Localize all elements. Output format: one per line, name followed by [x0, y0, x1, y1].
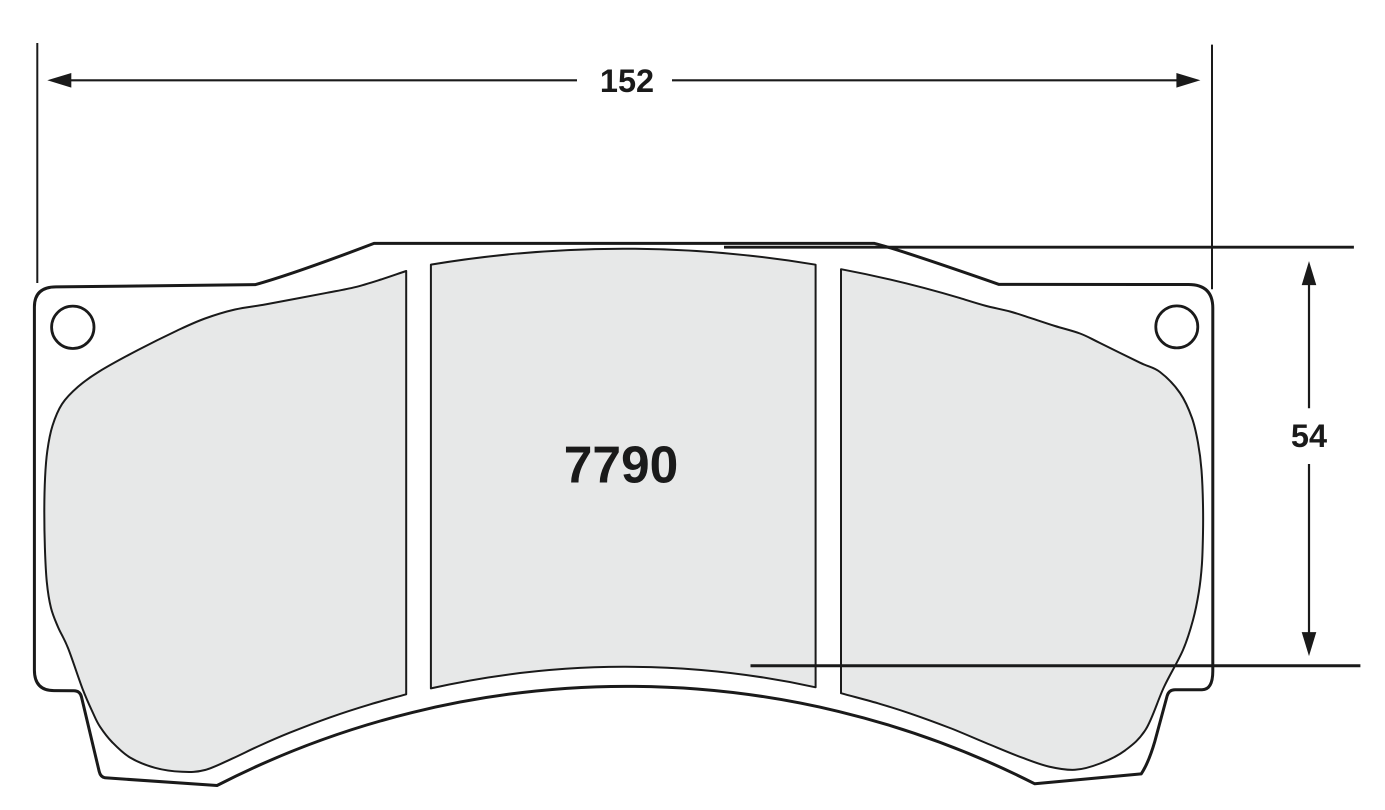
svg-text:54: 54	[1291, 418, 1327, 454]
svg-text:7790: 7790	[564, 436, 679, 494]
svg-text:152: 152	[600, 63, 654, 99]
